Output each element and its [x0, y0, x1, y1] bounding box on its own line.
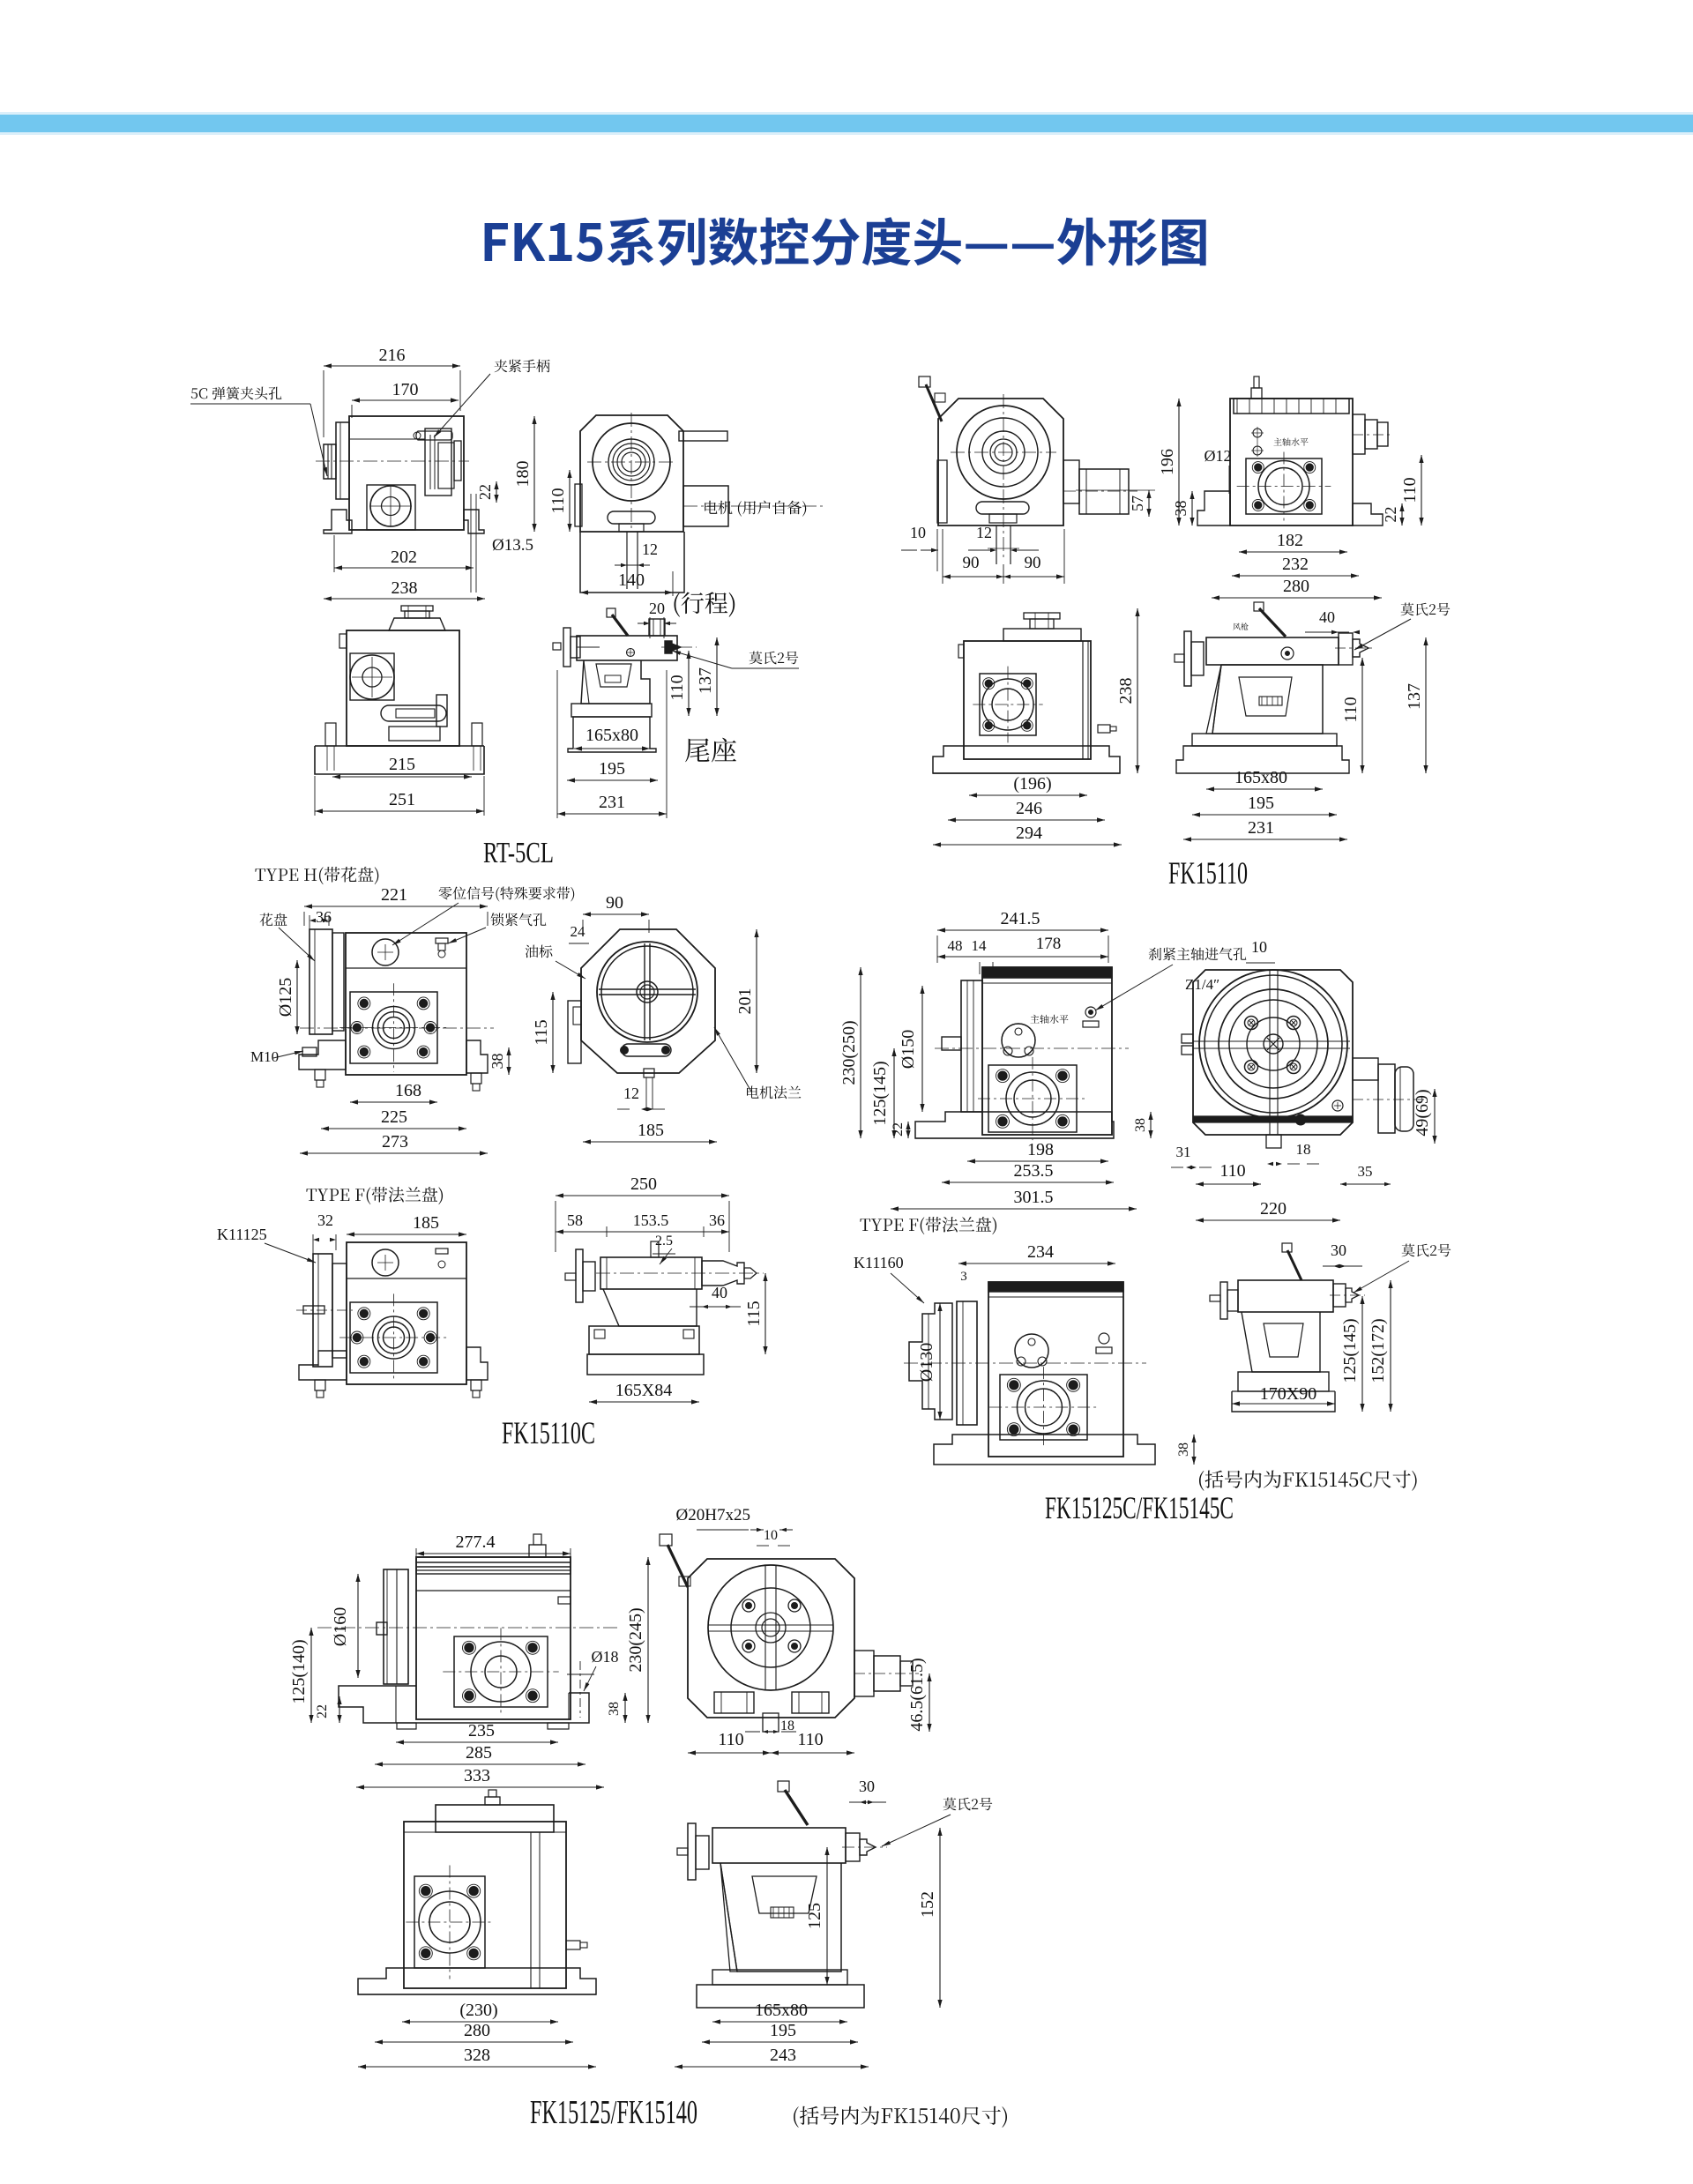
svg-text:232: 232: [1282, 555, 1309, 574]
svg-text:Ø125: Ø125: [276, 978, 295, 1017]
svg-text:178: 178: [1036, 935, 1062, 953]
svg-text:195: 195: [770, 2021, 796, 2040]
svg-text:12: 12: [623, 1085, 639, 1102]
svg-text:46.5(61.5): 46.5(61.5): [907, 1658, 927, 1731]
svg-text:RT-5CL: RT-5CL: [483, 837, 554, 869]
svg-text:216: 216: [379, 346, 406, 365]
svg-text:(196): (196): [1013, 774, 1051, 794]
svg-text:38: 38: [1176, 1442, 1191, 1457]
svg-text:12: 12: [976, 524, 992, 541]
svg-text:22: 22: [476, 484, 494, 500]
svg-text:152(172): 152(172): [1369, 1318, 1388, 1383]
svg-text:225: 225: [381, 1107, 407, 1127]
svg-text:14: 14: [972, 937, 988, 954]
svg-text:M10: M10: [250, 1048, 279, 1065]
svg-text:231: 231: [1248, 818, 1274, 838]
svg-text:110: 110: [1341, 697, 1361, 722]
svg-text:273: 273: [382, 1132, 408, 1152]
svg-text:137: 137: [696, 667, 715, 694]
svg-text:168: 168: [395, 1081, 421, 1100]
svg-text:238: 238: [392, 578, 418, 598]
svg-text:(230): (230): [459, 2001, 497, 2020]
svg-text:137: 137: [1405, 683, 1424, 710]
svg-text:18: 18: [780, 1718, 794, 1733]
svg-text:125: 125: [805, 1903, 824, 1929]
svg-text:285: 285: [466, 1743, 492, 1763]
svg-text:31: 31: [1176, 1144, 1191, 1160]
svg-text:153.5: 153.5: [633, 1211, 669, 1229]
svg-text:230(245): 230(245): [626, 1607, 645, 1672]
svg-text:Ø12: Ø12: [1204, 447, 1232, 465]
svg-text:K11160: K11160: [854, 1254, 904, 1271]
svg-text:57: 57: [1129, 496, 1146, 511]
svg-text:Z1/4″: Z1/4″: [1185, 976, 1219, 993]
svg-text:185: 185: [413, 1213, 439, 1233]
svg-text:20: 20: [649, 600, 665, 617]
svg-text:182: 182: [1277, 531, 1303, 550]
svg-text:243: 243: [770, 2046, 796, 2065]
svg-text:30: 30: [859, 1778, 875, 1795]
svg-text:110: 110: [797, 1730, 823, 1749]
svg-text:110: 110: [1400, 477, 1420, 503]
svg-text:35: 35: [1358, 1163, 1373, 1180]
svg-text:90: 90: [606, 893, 623, 913]
svg-text:165x80: 165x80: [585, 726, 638, 745]
svg-text:32: 32: [317, 1211, 333, 1229]
svg-text:Ø150: Ø150: [899, 1030, 918, 1069]
svg-text:196: 196: [1158, 449, 1177, 475]
svg-text:125(145): 125(145): [870, 1061, 890, 1125]
svg-text:Ø160: Ø160: [331, 1607, 350, 1646]
svg-text:251: 251: [389, 790, 415, 809]
svg-text:90: 90: [1025, 554, 1041, 572]
svg-text:294: 294: [1016, 824, 1042, 843]
svg-text:22: 22: [1382, 507, 1399, 523]
svg-text:10: 10: [910, 524, 926, 541]
svg-text:170X90: 170X90: [1260, 1384, 1316, 1404]
svg-text:125(140): 125(140): [289, 1639, 309, 1703]
svg-text:12: 12: [642, 540, 658, 558]
svg-text:110: 110: [668, 675, 687, 700]
svg-text:Ø130: Ø130: [917, 1343, 936, 1382]
svg-text:198: 198: [1027, 1140, 1054, 1159]
svg-text:58: 58: [567, 1211, 583, 1229]
svg-text:235: 235: [468, 1721, 495, 1740]
svg-text:195: 195: [599, 759, 625, 779]
svg-text:90: 90: [963, 554, 980, 572]
svg-text:280: 280: [464, 2021, 490, 2040]
svg-text:115: 115: [744, 1301, 764, 1326]
svg-text:Ø18: Ø18: [592, 1648, 619, 1666]
svg-text:36: 36: [709, 1211, 725, 1229]
svg-text:38: 38: [1133, 1118, 1148, 1132]
svg-text:165X84: 165X84: [615, 1381, 672, 1400]
svg-text:10: 10: [1251, 938, 1267, 956]
svg-text:Ø13.5: Ø13.5: [492, 536, 533, 555]
svg-text:38: 38: [607, 1702, 622, 1716]
svg-text:K11125: K11125: [217, 1226, 267, 1243]
svg-text:FK15125/FK15140: FK15125/FK15140: [530, 2094, 697, 2131]
svg-text:201: 201: [735, 988, 755, 1015]
svg-text:18: 18: [1296, 1141, 1311, 1158]
svg-text:22: 22: [315, 1704, 330, 1718]
svg-text:241.5: 241.5: [1001, 909, 1040, 928]
svg-text:246: 246: [1016, 799, 1042, 818]
svg-text:40: 40: [712, 1284, 727, 1301]
svg-text:48: 48: [948, 937, 963, 954]
svg-text:230(250): 230(250): [839, 1020, 859, 1085]
svg-text:38: 38: [1172, 501, 1190, 517]
svg-text:180: 180: [513, 461, 533, 488]
svg-text:185: 185: [638, 1121, 664, 1140]
svg-text:202: 202: [391, 548, 417, 567]
svg-text:333: 333: [464, 1766, 490, 1785]
svg-text:125(145): 125(145): [1340, 1318, 1360, 1383]
svg-text:140: 140: [618, 570, 645, 590]
svg-text:110: 110: [1219, 1161, 1245, 1181]
svg-text:38: 38: [489, 1054, 506, 1070]
svg-text:3: 3: [960, 1270, 967, 1284]
svg-text:195: 195: [1248, 794, 1274, 813]
svg-text:234: 234: [1027, 1242, 1054, 1262]
svg-text:165x80: 165x80: [755, 2001, 808, 2020]
svg-text:49(69): 49(69): [1413, 1089, 1432, 1136]
svg-text:22: 22: [891, 1122, 906, 1137]
svg-text:277.4: 277.4: [456, 1532, 496, 1552]
svg-text:220: 220: [1260, 1199, 1287, 1219]
svg-text:231: 231: [599, 793, 625, 812]
svg-text:110: 110: [548, 488, 568, 513]
svg-text:30: 30: [1331, 1241, 1346, 1259]
svg-text:238: 238: [1116, 678, 1136, 704]
svg-text:152: 152: [918, 1891, 937, 1918]
svg-text:215: 215: [389, 755, 415, 774]
svg-text:Ø20H7x25: Ø20H7x25: [676, 1506, 750, 1524]
svg-text:115: 115: [532, 1019, 551, 1045]
svg-text:253.5: 253.5: [1014, 1161, 1054, 1181]
svg-text:301.5: 301.5: [1014, 1188, 1054, 1207]
svg-text:10: 10: [764, 1528, 778, 1543]
svg-text:110: 110: [718, 1730, 743, 1749]
svg-text:FK15125C/FK15145C: FK15125C/FK15145C: [1045, 1490, 1234, 1525]
svg-text:24: 24: [571, 923, 586, 940]
svg-text:165x80: 165x80: [1234, 768, 1287, 787]
svg-text:40: 40: [1319, 608, 1335, 626]
svg-text:221: 221: [381, 885, 407, 905]
svg-text:250: 250: [630, 1174, 657, 1194]
svg-text:FK15110: FK15110: [1168, 855, 1248, 891]
svg-text:328: 328: [464, 2046, 490, 2065]
svg-text:170: 170: [392, 380, 419, 399]
svg-text:FK15110C: FK15110C: [502, 1415, 595, 1450]
svg-text:280: 280: [1283, 577, 1309, 596]
